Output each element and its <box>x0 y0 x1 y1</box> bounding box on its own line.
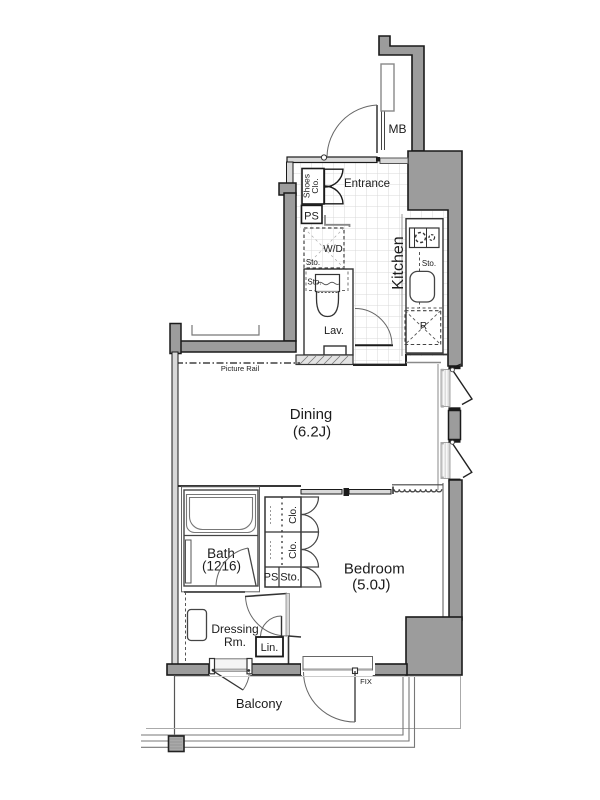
svg-text:Lin.: Lin. <box>261 642 279 654</box>
svg-text:Sto.: Sto. <box>280 572 300 584</box>
svg-text:Clo.: Clo. <box>310 178 320 193</box>
svg-text:Clo.: Clo. <box>288 506 299 524</box>
svg-text:Rm.: Rm. <box>224 635 246 649</box>
svg-text:Balcony: Balcony <box>236 696 283 711</box>
svg-text:Bedroom: Bedroom <box>344 561 405 578</box>
svg-text:Picture Rail: Picture Rail <box>221 364 260 373</box>
svg-text:Entrance: Entrance <box>344 178 390 190</box>
svg-text:MB: MB <box>389 122 407 136</box>
svg-text:Kitchen: Kitchen <box>390 236 407 289</box>
svg-text:Clo.: Clo. <box>288 541 299 559</box>
svg-text:Lav.: Lav. <box>324 325 344 337</box>
svg-text:Sto.: Sto. <box>306 258 320 267</box>
svg-text:Sto.: Sto. <box>422 259 436 268</box>
svg-text:W/D: W/D <box>323 244 342 255</box>
svg-text:FIX: FIX <box>360 677 372 686</box>
svg-text:PS: PS <box>304 211 319 223</box>
svg-text:(6.2J): (6.2J) <box>293 424 331 441</box>
svg-text:(5.0J): (5.0J) <box>352 577 390 594</box>
svg-text:Dressing: Dressing <box>211 622 258 636</box>
svg-text:Sto.: Sto. <box>307 278 321 287</box>
svg-text:Dining: Dining <box>290 406 333 423</box>
svg-text:R: R <box>420 321 427 332</box>
svg-text:PS: PS <box>264 572 279 584</box>
